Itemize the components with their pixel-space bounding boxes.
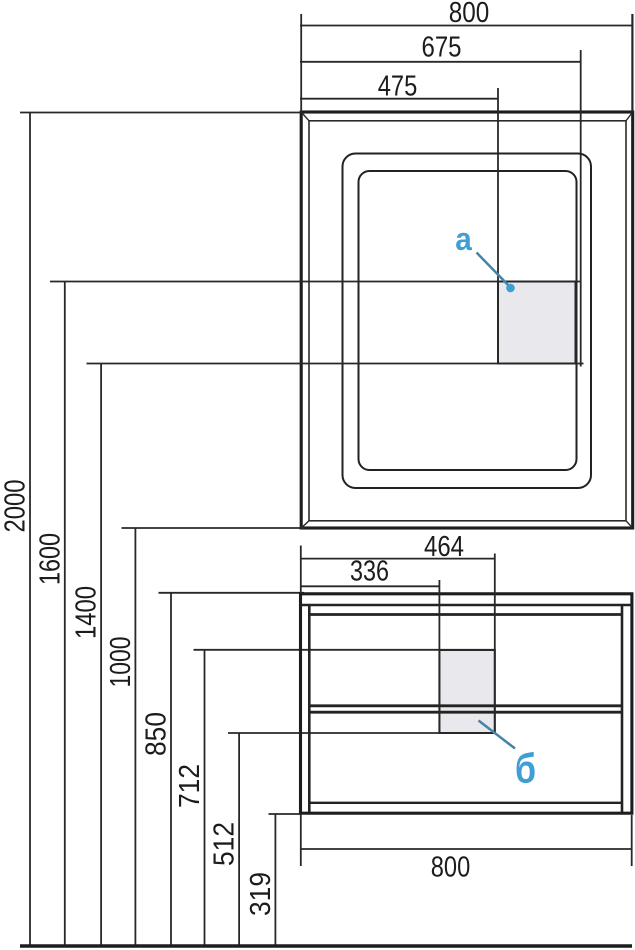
svg-text:a: a: [455, 221, 472, 257]
svg-text:1600: 1600: [34, 533, 66, 585]
svg-text:850: 850: [141, 712, 173, 756]
svg-text:475: 475: [378, 71, 418, 103]
svg-text:б: б: [515, 745, 536, 792]
svg-text:800: 800: [431, 852, 471, 884]
svg-text:712: 712: [174, 764, 206, 808]
svg-text:1400: 1400: [71, 586, 103, 639]
svg-text:319: 319: [245, 872, 277, 916]
svg-text:464: 464: [424, 531, 464, 563]
svg-text:336: 336: [350, 556, 389, 588]
svg-text:2000: 2000: [0, 480, 32, 533]
svg-text:800: 800: [449, 0, 490, 29]
svg-text:1000: 1000: [105, 637, 137, 688]
svg-text:675: 675: [422, 32, 462, 64]
svg-text:512: 512: [209, 822, 241, 866]
